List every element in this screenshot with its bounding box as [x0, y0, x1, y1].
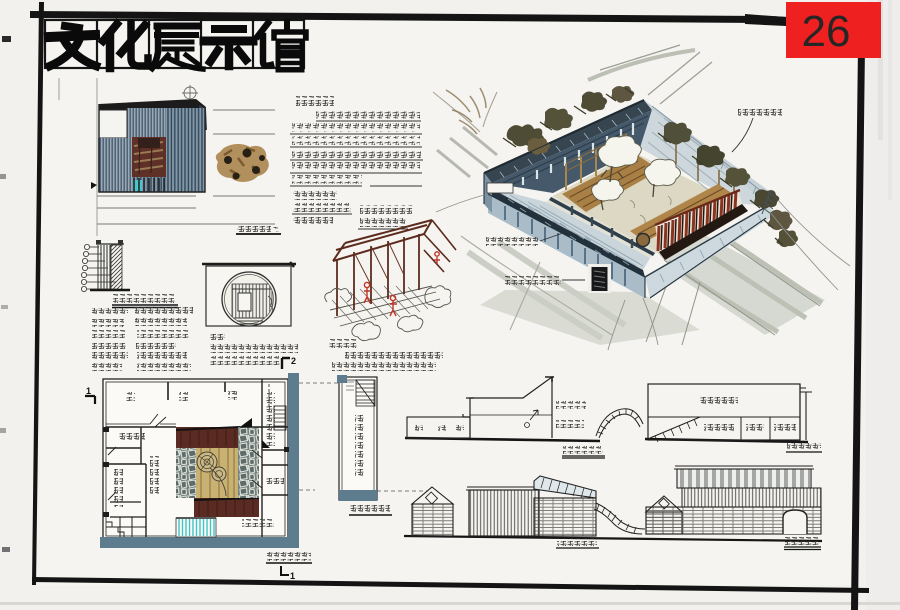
svg-text:26: 26 [802, 7, 851, 56]
svg-text:2: 2 [291, 356, 296, 366]
svg-text:1: 1 [290, 571, 295, 581]
svg-text:1: 1 [86, 386, 91, 396]
